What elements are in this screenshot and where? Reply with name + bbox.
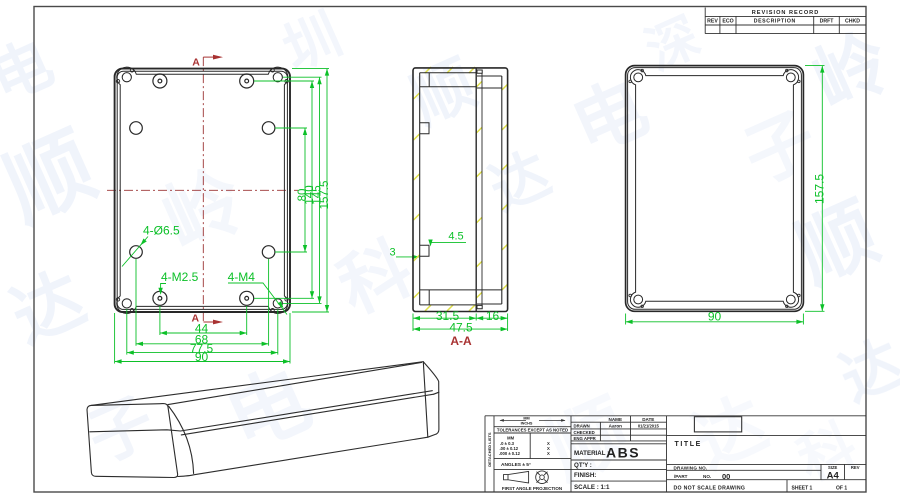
svg-text:3: 3 [389, 247, 395, 259]
svg-text:NO.: NO. [703, 474, 711, 479]
svg-text:DRFT: DRFT [820, 19, 835, 25]
svg-text:科: 科 [327, 228, 423, 328]
svg-text:47.5: 47.5 [449, 320, 473, 334]
svg-text:顺: 顺 [401, 49, 486, 137]
svg-text:01/21/2015: 01/21/2015 [638, 424, 660, 429]
svg-text:4-Ø6.5: 4-Ø6.5 [143, 224, 180, 238]
svg-text:达: 达 [0, 258, 96, 358]
svg-text:CHECKED: CHECKED [574, 430, 595, 435]
svg-text:INCHS: INCHS [521, 422, 533, 426]
svg-text:16: 16 [486, 309, 500, 323]
svg-text:TITLE: TITLE [675, 441, 702, 448]
svg-text:DATE: DATE [642, 417, 654, 422]
svg-text:4-M4: 4-M4 [228, 270, 256, 284]
svg-text:DETACHED LISTS: DETACHED LISTS [487, 432, 492, 467]
svg-text:DESCRIPTION: DESCRIPTION [754, 19, 796, 25]
svg-text:NAME: NAME [609, 417, 623, 422]
svg-text:电: 电 [561, 67, 659, 169]
svg-text:顺: 顺 [0, 117, 109, 240]
svg-text:SCALE : 1:1: SCALE : 1:1 [574, 484, 610, 491]
svg-text:90: 90 [195, 350, 209, 364]
svg-text:4-M2.5: 4-M2.5 [161, 270, 199, 284]
svg-text:157.5: 157.5 [813, 174, 827, 204]
svg-text:90: 90 [708, 310, 722, 324]
svg-text:DRAWN: DRAWN [574, 424, 590, 429]
svg-text:达: 达 [480, 141, 559, 224]
svg-text:QT'Y :: QT'Y : [574, 462, 592, 469]
svg-text:MATERIAL :: MATERIAL : [574, 450, 609, 457]
svg-text:FIRST ANGLE PROJECTION: FIRST ANGLE PROJECTION [502, 486, 562, 491]
svg-text:岭: 岭 [150, 154, 257, 266]
svg-text:/PART: /PART [674, 474, 688, 479]
svg-text:ECO: ECO [722, 19, 733, 25]
svg-text:电: 电 [0, 28, 63, 114]
svg-text:ENG APPR: ENG APPR [574, 436, 597, 441]
svg-text:ABS: ABS [606, 445, 640, 461]
svg-text:A4: A4 [827, 470, 840, 481]
svg-text:DO NOT SCALE DRAWING: DO NOT SCALE DRAWING [674, 485, 746, 491]
svg-text:DRAWING NO.: DRAWING NO. [674, 466, 708, 471]
svg-text:A: A [192, 56, 200, 68]
svg-text:.000 ± 0.12: .000 ± 0.12 [499, 451, 521, 456]
svg-text:A-A: A-A [450, 334, 472, 348]
svg-text:REVISION RECORD: REVISION RECORD [752, 10, 820, 16]
svg-text:MM: MM [523, 417, 529, 421]
svg-text:157.5: 157.5 [319, 181, 331, 210]
svg-text:X: X [547, 451, 550, 456]
svg-text:OF 1: OF 1 [836, 485, 847, 491]
svg-text:00: 00 [722, 472, 730, 481]
svg-text:REV: REV [851, 465, 860, 470]
svg-text:深: 深 [638, 7, 709, 81]
svg-text:ANGLES ± 5°: ANGLES ± 5° [501, 462, 531, 468]
svg-text:岭: 岭 [801, 19, 900, 125]
svg-text:TOLERANCES EXCEPT AS NOTED: TOLERANCES EXCEPT AS NOTED [497, 428, 568, 433]
svg-text:SIZE: SIZE [828, 465, 838, 470]
svg-text:FINISH:: FINISH: [574, 472, 596, 479]
svg-text:SHEET 1: SHEET 1 [792, 485, 813, 491]
svg-text:CHKD: CHKD [845, 19, 860, 25]
svg-text:REV: REV [707, 19, 718, 25]
svg-text:电: 电 [214, 353, 323, 467]
svg-text:Aaron: Aaron [609, 424, 622, 429]
svg-text:顺: 顺 [783, 187, 890, 299]
svg-text:4.5: 4.5 [448, 231, 463, 243]
